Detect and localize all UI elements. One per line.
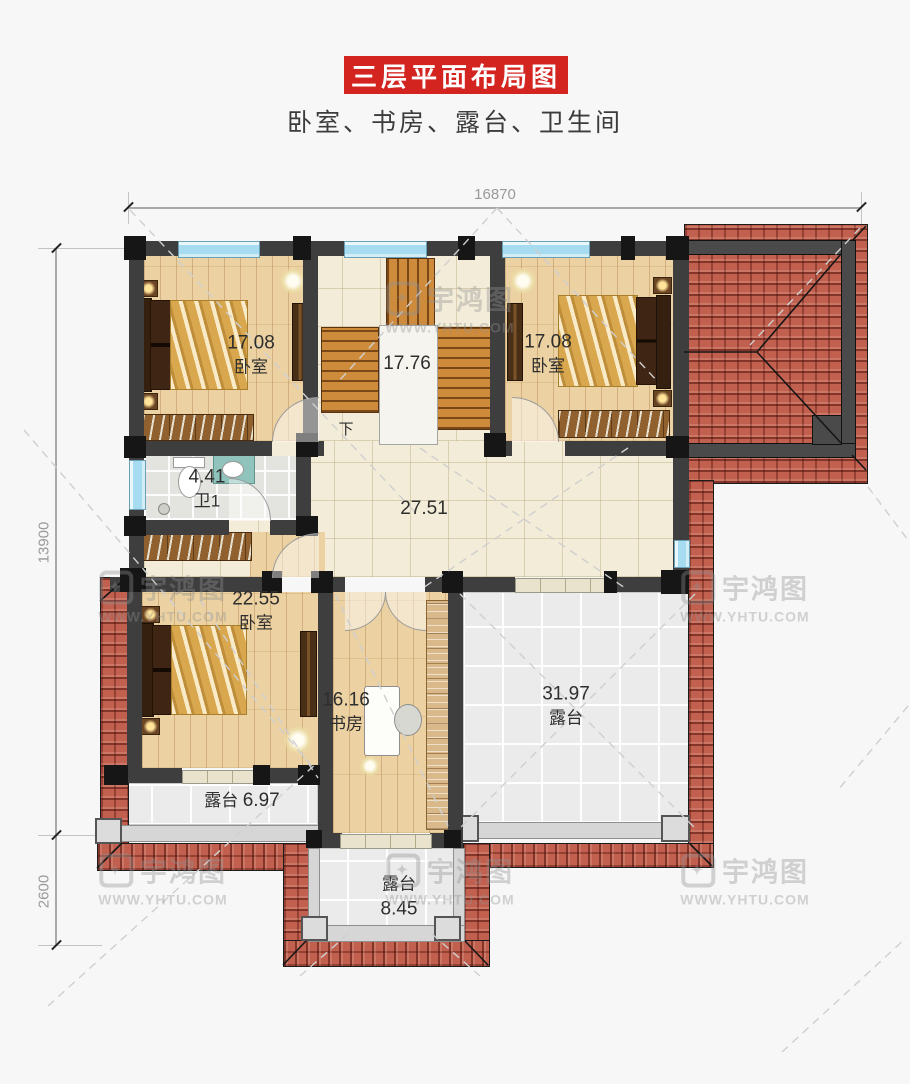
window xyxy=(674,540,690,568)
roof-strip-right xyxy=(688,480,714,868)
bed-pillows xyxy=(150,300,172,390)
wall-column xyxy=(621,236,635,260)
wall-column xyxy=(104,765,128,785)
room-name: 书房 xyxy=(322,713,370,736)
watermark-url: WWW.YHTU.COM xyxy=(98,609,227,625)
bed-headboard xyxy=(656,295,671,389)
bookshelf xyxy=(426,600,450,830)
watermark-url: WWW.YHTU.COM xyxy=(680,892,809,908)
dresser xyxy=(300,631,317,717)
watermark-brand: 宇鸿图 xyxy=(427,279,514,318)
room-name: 卧室 xyxy=(232,612,280,635)
garage-roof-ridge-bottom xyxy=(684,443,856,458)
plant xyxy=(284,726,312,754)
room-label-bathroom: 4.41 卫1 xyxy=(189,465,226,514)
wall-column xyxy=(124,516,146,536)
dim-ext xyxy=(38,945,102,946)
wall-column xyxy=(666,236,689,260)
watermark: ✦宇鸿图 WWW.YHTU.COM xyxy=(98,851,227,908)
wall xyxy=(673,241,689,577)
room-label-hall: 27.51 xyxy=(400,496,448,522)
dim-ext xyxy=(38,835,102,836)
brand-logo-icon: ✦ xyxy=(681,853,715,887)
dim-line-left xyxy=(55,248,57,945)
wall xyxy=(448,577,463,845)
wall xyxy=(463,577,515,592)
wall-column xyxy=(306,830,322,848)
page-title: 三层平面布局图 xyxy=(351,57,561,94)
stairs-down-label: 下 xyxy=(338,420,353,440)
dim-top-value: 16870 xyxy=(455,186,535,203)
railing-post xyxy=(95,818,122,844)
window xyxy=(502,241,590,258)
dim-ext xyxy=(38,248,130,249)
bed-pillows xyxy=(152,625,173,715)
wall xyxy=(129,441,272,456)
nightstand-lamp xyxy=(141,718,160,735)
room-name: 卧室 xyxy=(227,356,275,379)
railing-post xyxy=(301,916,328,941)
room-area: 6.97 xyxy=(243,790,280,811)
room-area: 27.51 xyxy=(400,496,448,522)
watermark-brand: 宇鸿图 xyxy=(140,851,227,890)
wall-column xyxy=(604,571,617,593)
room-label-study: 16.16 书房 xyxy=(322,688,370,737)
nightstand-lamp xyxy=(653,390,672,407)
wall-column xyxy=(666,436,689,458)
watermark: ✦宇鸿图 WWW.YHTU.COM xyxy=(680,568,809,625)
dim-line-top xyxy=(128,207,862,209)
plant xyxy=(360,756,380,776)
watermark-brand: 宇鸿图 xyxy=(722,568,809,607)
watermark-brand: 宇鸿图 xyxy=(427,851,514,890)
brand-logo-icon: ✦ xyxy=(386,853,420,887)
watermark: ✦宇鸿图 WWW.YHTU.COM xyxy=(385,851,514,908)
room-name: 露台 xyxy=(204,791,238,810)
wall-column xyxy=(124,236,146,260)
sliding-door-terrace-bottom xyxy=(340,834,432,849)
bed-blanket xyxy=(171,625,247,715)
room-area: 17.08 xyxy=(524,330,572,356)
wall-column xyxy=(124,436,146,458)
wardrobe xyxy=(558,410,670,438)
page-subtitle: 卧室、书房、露台、卫生间 xyxy=(0,103,910,139)
room-area: 4.41 xyxy=(189,465,226,491)
room-label-terrace-small: 露台 6.97 xyxy=(204,788,279,814)
dim-left-bottom-value: 2600 xyxy=(36,862,53,922)
room-label-stairwell: 17.76 xyxy=(383,351,431,377)
room-area: 17.76 xyxy=(383,351,431,377)
wall-column xyxy=(444,830,461,848)
watermark-brand: 宇鸿图 xyxy=(140,568,227,607)
room-area: 22.55 xyxy=(232,587,280,613)
floor-drain xyxy=(158,503,170,515)
room-name: 卫1 xyxy=(189,490,226,513)
stairs-left-flight xyxy=(321,327,379,413)
window-bathroom xyxy=(129,460,146,510)
railing-post xyxy=(434,916,461,941)
room-label-bedroom-top-right: 17.08 卧室 xyxy=(524,330,572,379)
wardrobe xyxy=(140,532,252,561)
floor-plan-page: 三层平面布局图 卧室、书房、露台、卫生间 16870 13900 2600 xyxy=(0,0,910,1084)
wall-column xyxy=(458,236,475,260)
stairs-landing xyxy=(379,325,438,445)
brand-logo-icon: ✦ xyxy=(386,281,420,315)
brand-logo-icon: ✦ xyxy=(681,570,715,604)
wall xyxy=(129,241,144,460)
page-title-banner: 三层平面布局图 xyxy=(344,56,568,94)
wall-column xyxy=(484,433,506,457)
room-label-bedroom-lower-left: 22.55 卧室 xyxy=(232,587,280,636)
roof-border-bottom-terrace-bottom xyxy=(283,940,490,967)
room-label-terrace-large: 31.97 露台 xyxy=(542,682,590,731)
watermark: ✦宇鸿图 WWW.YHTU.COM xyxy=(680,851,809,908)
window xyxy=(178,241,260,258)
room-label-bedroom-top-left: 17.08 卧室 xyxy=(227,331,275,380)
garage-roof-ridge-top xyxy=(684,240,856,255)
wall-column xyxy=(442,571,463,593)
watermark-url: WWW.YHTU.COM xyxy=(385,320,514,336)
room-area: 17.08 xyxy=(227,331,275,357)
railing-post xyxy=(661,815,690,842)
watermark-brand: 宇鸿图 xyxy=(722,851,809,890)
room-name: 卧室 xyxy=(524,355,572,378)
brand-logo-icon: ✦ xyxy=(99,570,133,604)
stairs-right-flight xyxy=(435,327,495,430)
wardrobe xyxy=(142,414,254,441)
wall-column xyxy=(298,765,320,785)
wall-column xyxy=(293,236,311,260)
wall-column xyxy=(253,765,270,785)
bed-pillows xyxy=(636,297,658,385)
dim-left-value: 13900 xyxy=(36,513,53,573)
watermark-url: WWW.YHTU.COM xyxy=(98,892,227,908)
watermark-url: WWW.YHTU.COM xyxy=(385,892,514,908)
room-name: 露台 xyxy=(542,707,590,730)
railing-small-terrace xyxy=(112,825,320,842)
chair xyxy=(394,704,422,736)
brand-logo-icon: ✦ xyxy=(99,853,133,887)
window xyxy=(344,241,427,258)
chimney xyxy=(812,415,842,445)
watermark: ✦宇鸿图 WWW.YHTU.COM xyxy=(98,568,227,625)
nightstand-lamp xyxy=(653,277,672,294)
room-area: 16.16 xyxy=(322,688,370,714)
watermark: ✦宇鸿图 WWW.YHTU.COM xyxy=(385,279,514,336)
garage-roof-ridge-right xyxy=(841,240,856,458)
railing-large-terrace xyxy=(468,822,666,839)
room-area: 31.97 xyxy=(542,682,590,708)
sliding-door-terrace-large xyxy=(515,578,617,593)
watermark-url: WWW.YHTU.COM xyxy=(680,609,809,625)
